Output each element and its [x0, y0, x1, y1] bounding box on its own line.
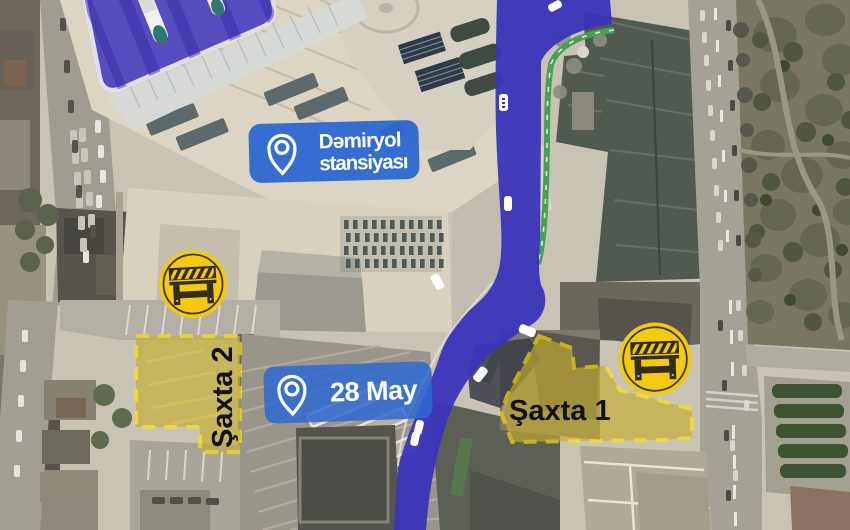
svg-text:stansiyası: stansiyası	[319, 150, 408, 175]
svg-text:28 May: 28 May	[329, 375, 418, 408]
svg-text:Şaxta 2: Şaxta 2	[207, 346, 239, 448]
svg-text:Şaxta 1: Şaxta 1	[509, 395, 611, 427]
